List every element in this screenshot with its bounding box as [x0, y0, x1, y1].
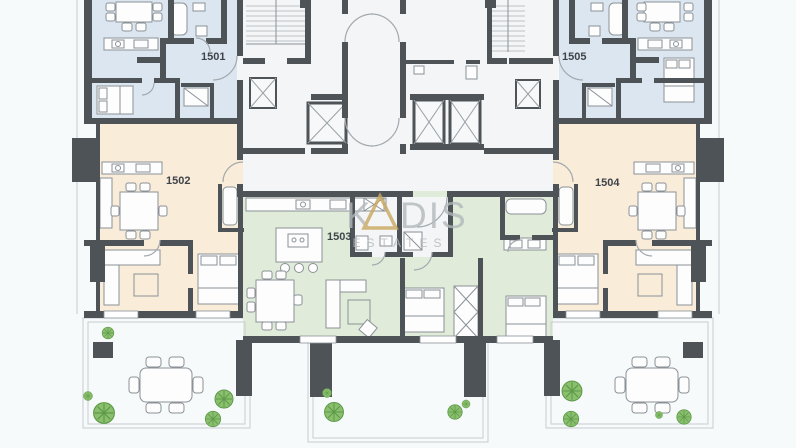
toilet: [196, 26, 207, 36]
unit-label-1501: 1501: [201, 51, 225, 63]
sofa: [326, 280, 340, 328]
unit-label-1505: 1505: [562, 51, 586, 63]
room-fills: [90, 0, 706, 343]
unit-label-1504: 1504: [595, 177, 620, 189]
bed: [198, 254, 240, 304]
watermark-dis: DIS: [400, 195, 468, 236]
sofa: [636, 250, 692, 265]
unit-label-1503: 1503: [327, 231, 351, 243]
staircase-right: [490, 0, 527, 58]
kitchen-island: [276, 228, 322, 262]
bed: [556, 254, 598, 304]
kitchen-counter: [634, 162, 694, 174]
dining-table: [116, 2, 152, 22]
kitchen-counter: [102, 162, 162, 174]
service-shaft-right: [516, 80, 540, 108]
sofa: [104, 250, 160, 265]
dining-table: [256, 280, 294, 322]
bathtub: [506, 199, 546, 214]
staircase-left: [243, 0, 311, 58]
unit-label-1502: 1502: [166, 175, 190, 187]
floor-plan-svg: K DIS ESTATES 1501 1502 1503 1504 1505: [0, 0, 796, 448]
dining-table: [120, 192, 158, 230]
service-shaft-left: [250, 78, 276, 108]
toilet: [466, 66, 477, 79]
bed: [97, 86, 133, 114]
dining-table: [644, 2, 680, 22]
kitchen-counter: [638, 38, 692, 50]
floor-plan: K DIS ESTATES 1501 1502 1503 1504 1505: [0, 0, 796, 448]
watermark-subtitle: ESTATES: [353, 236, 448, 250]
bathtub: [223, 187, 237, 225]
dining-table: [638, 192, 676, 230]
bathtub: [559, 187, 573, 225]
toilet: [589, 26, 600, 36]
wardrobe: [454, 286, 478, 338]
elevator-left: [308, 103, 346, 143]
